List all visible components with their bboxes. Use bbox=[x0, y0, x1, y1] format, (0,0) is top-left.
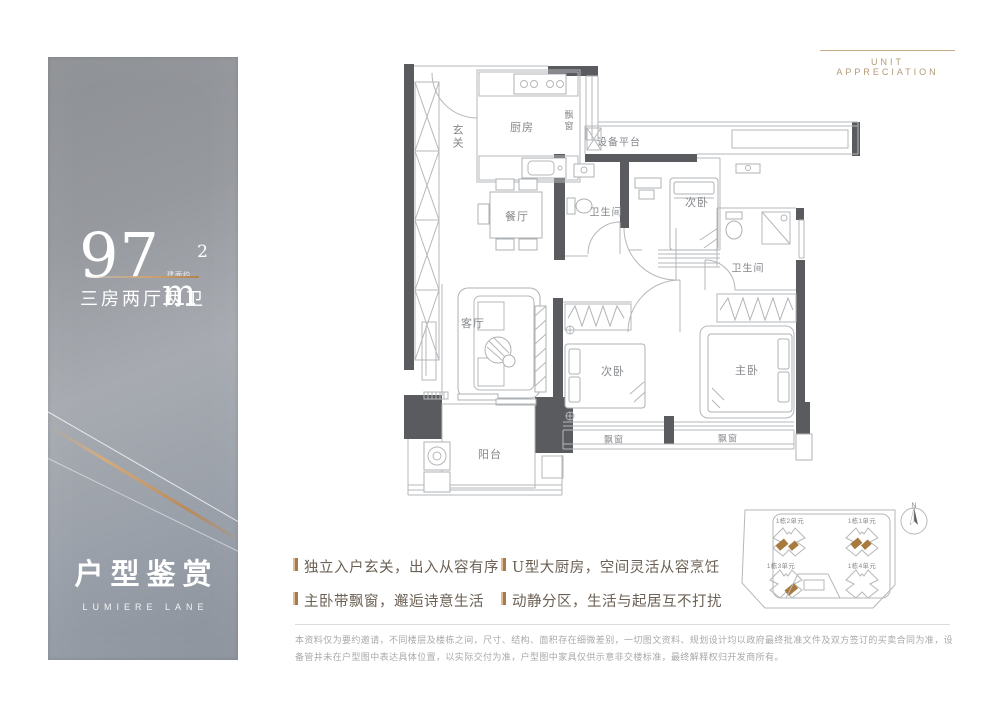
room-label-master-bedroom: 主卧 bbox=[735, 362, 759, 378]
layout-label: 三房两厅两卫 bbox=[48, 285, 238, 311]
stove bbox=[514, 74, 566, 94]
room-label-bathroom1: 卫生间 bbox=[590, 204, 623, 219]
site-key-plan bbox=[732, 496, 942, 626]
gold-bullet-icon bbox=[293, 592, 298, 605]
gold-bullet-icon bbox=[501, 592, 506, 605]
bedroom-top-zone bbox=[624, 158, 720, 332]
feature-text: 动静分区，生活与起居互不打扰 bbox=[512, 590, 722, 611]
feature-list: 独立入户玄关，出入从容有序 U型大厨房，空间灵活从容烹饪 主卧带飘窗，邂逅诗意生… bbox=[293, 556, 718, 611]
unit-appreciation-poster: 97 建面约 m 2 三房两厅两卫 户型鉴赏 LUMIERE LANE UNIT… bbox=[0, 0, 1000, 710]
gold-bullet-icon bbox=[293, 558, 298, 571]
room-label-kitchen-bay: 飘窗 bbox=[563, 110, 576, 132]
site-unit-label-2: 1栋2单元 bbox=[776, 517, 804, 526]
feature-item: U型大厨房，空间灵活从容烹饪 bbox=[501, 556, 722, 577]
footer-divider bbox=[295, 624, 950, 625]
gold-bullet-icon bbox=[501, 558, 506, 571]
room-label-kitchen: 厨房 bbox=[510, 119, 534, 135]
area-exponent: 2 bbox=[197, 242, 208, 262]
feature-text: 独立入户玄关，出入从容有序 bbox=[304, 556, 499, 577]
panel-deco-line-gold bbox=[48, 425, 234, 538]
wardrobe bbox=[565, 304, 631, 330]
bay-windows bbox=[563, 422, 794, 449]
room-label-entry: 玄关 bbox=[449, 124, 465, 150]
panel-subtitle: LUMIERE LANE bbox=[48, 602, 238, 612]
room-label-balcony: 阳台 bbox=[478, 446, 502, 462]
site-unit-label-3: 1栋3单元 bbox=[767, 562, 795, 571]
toilet bbox=[726, 212, 742, 219]
building-cluster-bl bbox=[770, 570, 802, 598]
sliding-door bbox=[458, 394, 498, 400]
feature-text: U型大厨房，空间灵活从容烹饪 bbox=[512, 556, 720, 577]
panel-title: 户型鉴赏 bbox=[48, 551, 238, 593]
panel-deco-line-white-1 bbox=[48, 409, 238, 527]
gold-divider bbox=[87, 276, 199, 278]
room-label-bedroom-top: 次卧 bbox=[685, 194, 709, 210]
room-label-living-room: 客厅 bbox=[461, 315, 485, 331]
building-cluster-tl bbox=[773, 528, 805, 556]
floorplan-drawing bbox=[402, 58, 862, 503]
washbasin bbox=[574, 164, 594, 177]
feature-item: 主卧带飘窗，邂逅诗意生活 bbox=[293, 590, 493, 611]
room-label-bathroom2: 卫生间 bbox=[732, 260, 765, 275]
feature-item: 动静分区，生活与起居互不打扰 bbox=[501, 590, 722, 611]
disclaimer-text: 本资料仅为要约邀请，不同楼层及楼栋之间，尺寸、结构、面积存在细微差别，一切图文资… bbox=[295, 632, 953, 666]
building-cluster-tr bbox=[846, 528, 878, 556]
living-room-zone bbox=[422, 284, 546, 399]
room-label-dining-room: 餐厅 bbox=[505, 208, 529, 224]
info-panel: 97 建面约 m 2 三房两厅两卫 户型鉴赏 LUMIERE LANE bbox=[48, 57, 238, 660]
room-label-bay-left: 飘窗 bbox=[604, 433, 624, 446]
room-label-bay-right: 飘窗 bbox=[718, 432, 738, 445]
compass-icon bbox=[901, 507, 927, 534]
room-label-equipment-platform: 设备平台 bbox=[597, 134, 641, 149]
site-unit-label-4: 1栋4单元 bbox=[848, 562, 876, 571]
toilet bbox=[567, 198, 575, 214]
feature-text: 主卧带飘窗，邂逅诗意生活 bbox=[304, 590, 484, 611]
feature-item: 独立入户玄关，出入从容有序 bbox=[293, 556, 493, 577]
compass-north-label: N bbox=[911, 501, 916, 509]
room-label-bedroom-mid: 次卧 bbox=[601, 363, 625, 379]
site-unit-label-1: 1栋1单元 bbox=[848, 517, 876, 526]
area-prefix: 建面约 bbox=[167, 270, 191, 280]
building-cluster-br bbox=[846, 570, 878, 598]
bedroom-mid-zone bbox=[563, 302, 645, 420]
